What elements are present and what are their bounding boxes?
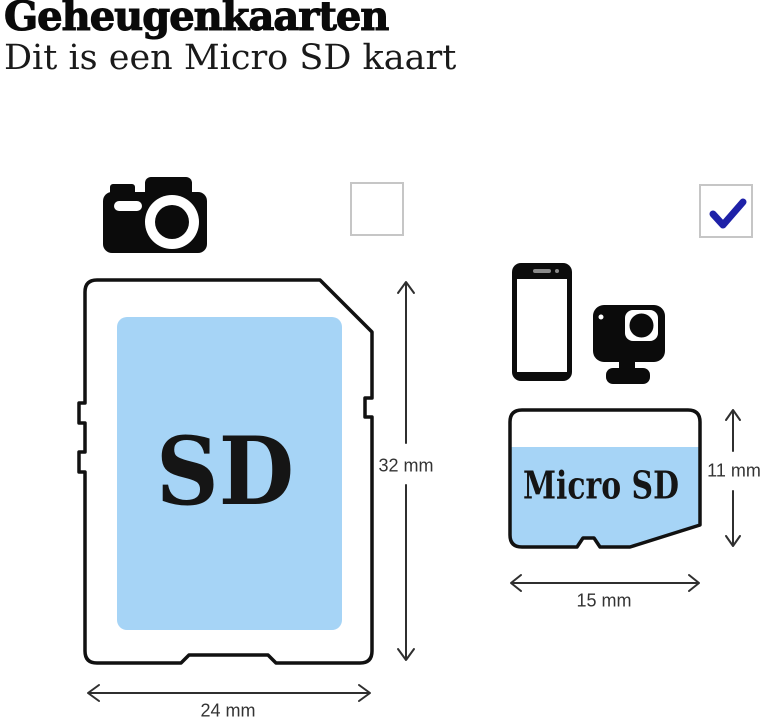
sd-width-label: 24 mm (200, 701, 255, 722)
camera-icon (100, 172, 210, 257)
sd-card-label: SD (156, 417, 294, 527)
checkmark-icon (701, 186, 755, 240)
micro-sd-height-label: 11 mm (707, 461, 761, 482)
page-subtitle: Dit is een Micro SD kaart (4, 38, 456, 78)
action-camera-icon (588, 298, 670, 390)
smartphone-icon (509, 259, 575, 385)
micro-sd-checkbox[interactable] (699, 184, 753, 238)
micro-sd-card-illustration: Micro SD (500, 400, 710, 560)
sd-card-illustration: SD (75, 275, 385, 675)
micro-sd-card-label: Micro SD (523, 463, 679, 508)
micro-sd-width-label: 15 mm (576, 591, 631, 612)
sd-checkbox[interactable] (350, 182, 404, 236)
infographic-memory-cards: Geheugenkaarten Dit is een Micro SD kaar… (0, 0, 768, 722)
page-title: Geheugenkaarten (4, 0, 388, 40)
sd-height-label: 32 mm (378, 456, 433, 477)
